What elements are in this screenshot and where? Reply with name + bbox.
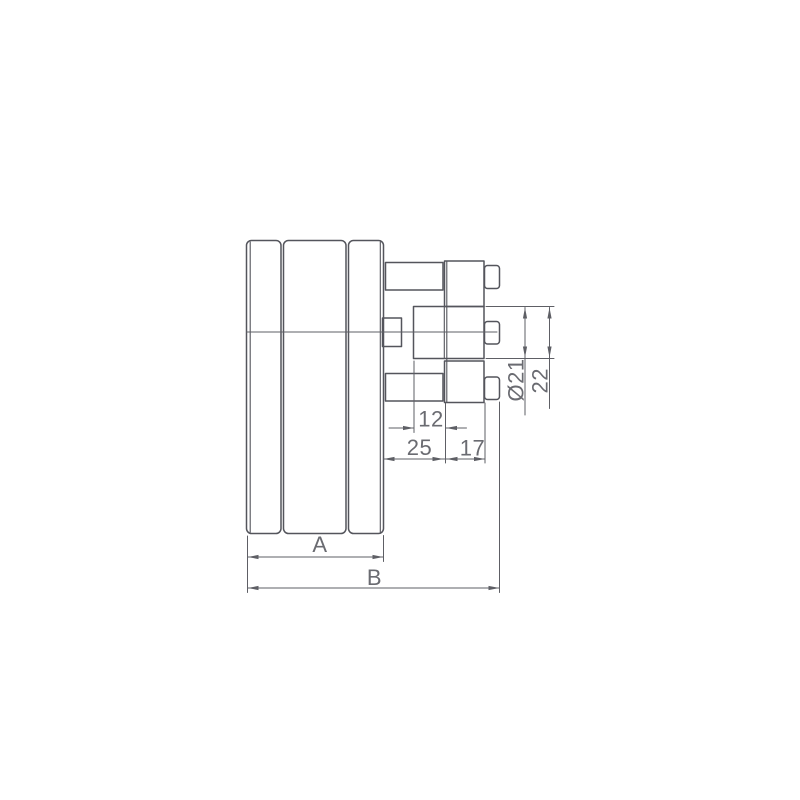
drawing-page: 12 25 17 Ø21 22 A B <box>0 0 800 800</box>
arrowhead-a-right <box>373 555 384 559</box>
bottom-bolt-nut <box>445 361 485 403</box>
gauge-case-band-middle <box>284 241 347 534</box>
arrowhead-22-bottom <box>547 347 551 358</box>
top-bolt-nut <box>445 261 485 307</box>
arrowhead-a-left <box>248 555 259 559</box>
part-geometry <box>247 241 500 534</box>
arrowhead-dia21-bottom <box>523 347 527 358</box>
arrowhead-12-right <box>446 426 457 430</box>
arrowhead-25-right <box>433 457 444 461</box>
gauge-case-band-rear <box>349 241 384 534</box>
center-stud-tip <box>485 322 500 345</box>
arrowhead-17-left <box>447 457 458 461</box>
arrowhead-22-top <box>547 308 551 319</box>
dim-label-12: 12 <box>418 407 443 432</box>
dimension-arrowheads <box>248 308 552 591</box>
bottom-bolt-tip <box>485 377 500 400</box>
top-bolt-tip <box>485 266 500 289</box>
arrowhead-b-right <box>489 586 500 590</box>
top-bolt-shank <box>386 263 444 291</box>
dim-label-25: 25 <box>407 435 432 460</box>
dim-label-dia21: Ø21 <box>504 358 529 401</box>
technical-drawing: 12 25 17 Ø21 22 A B <box>0 0 800 800</box>
arrowhead-b-left <box>248 586 259 590</box>
gauge-case-band-front <box>247 241 282 534</box>
arrowhead-dia21-top <box>523 308 527 319</box>
arrowhead-25-left <box>384 457 395 461</box>
dim-label-b: B <box>367 565 382 590</box>
dim-label-a: A <box>312 532 327 557</box>
dim-label-17: 17 <box>460 436 485 461</box>
arrowhead-12-left <box>403 426 414 430</box>
dimension-lines <box>247 307 555 593</box>
dim-label-22: 22 <box>528 368 553 393</box>
